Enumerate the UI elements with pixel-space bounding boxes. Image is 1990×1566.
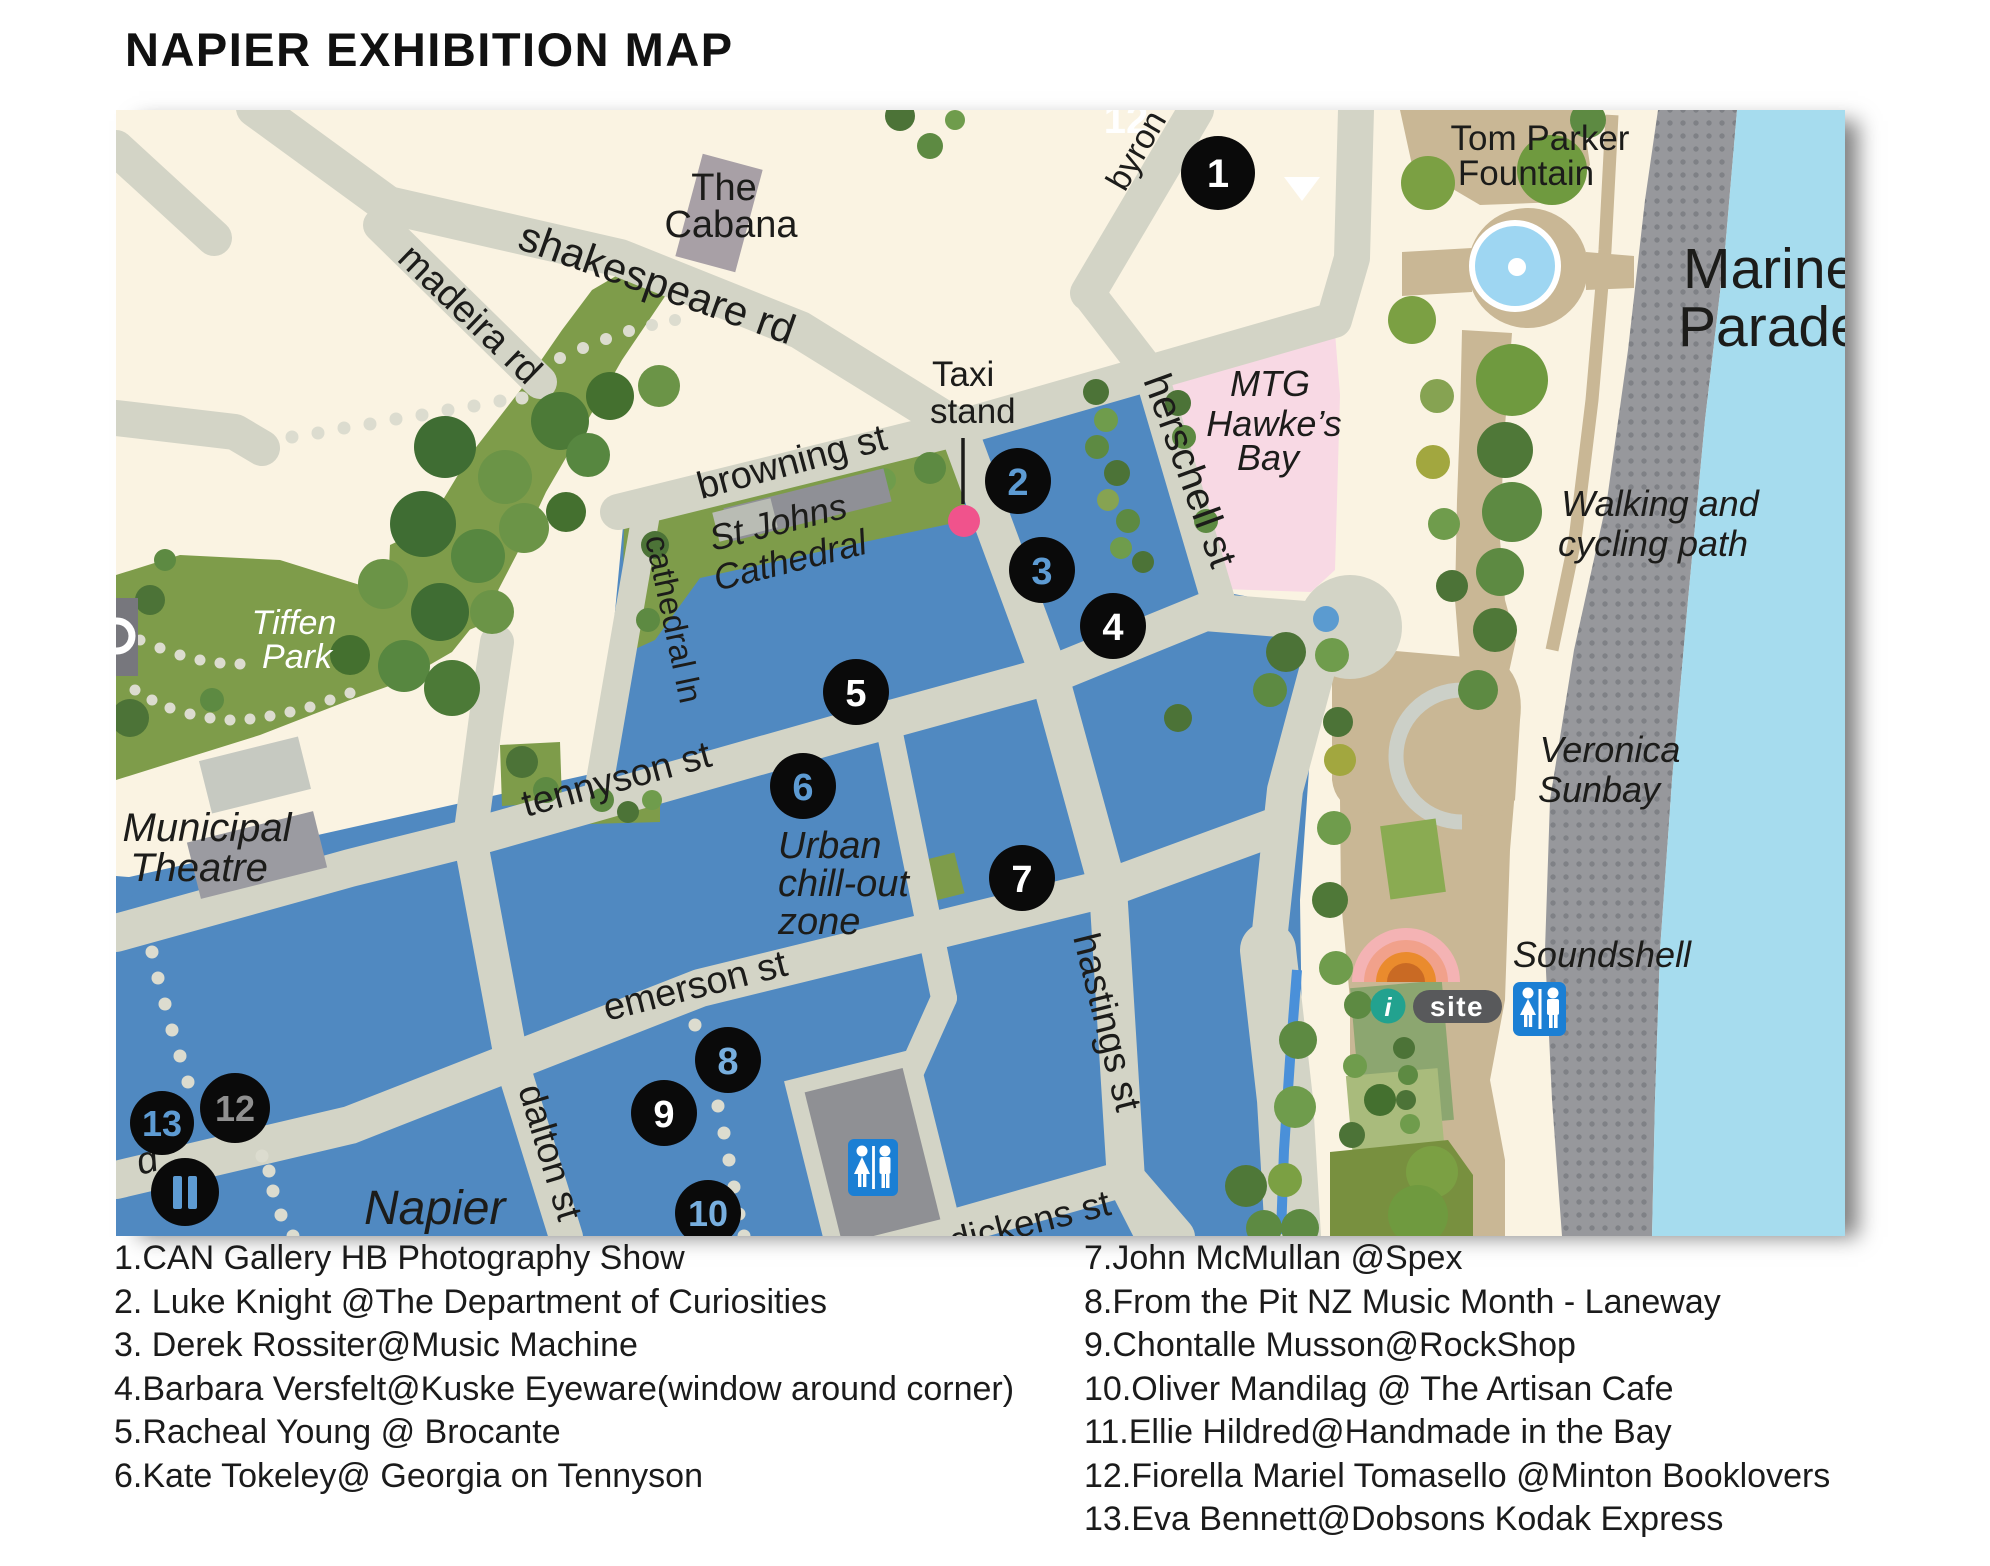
- svg-text:Bay: Bay: [1237, 437, 1301, 478]
- svg-text:Sunbay: Sunbay: [1538, 769, 1662, 810]
- svg-text:chill-out: chill-out: [778, 863, 910, 905]
- svg-text:cycling path: cycling path: [1558, 523, 1748, 564]
- svg-text:i: i: [1384, 992, 1392, 1022]
- svg-text:MTG: MTG: [1230, 363, 1310, 404]
- svg-text:13: 13: [142, 1103, 182, 1144]
- svg-text:Soundshell: Soundshell: [1513, 934, 1692, 975]
- svg-text:Urban: Urban: [778, 825, 882, 867]
- svg-text:The: The: [691, 167, 756, 209]
- svg-text:6: 6: [792, 767, 813, 809]
- svg-text:4: 4: [1102, 607, 1123, 649]
- svg-text:1: 1: [1207, 152, 1229, 196]
- svg-text:Napier: Napier: [364, 1182, 507, 1235]
- svg-text:Veronica: Veronica: [1540, 729, 1681, 770]
- svg-text:Taxi: Taxi: [932, 355, 994, 394]
- svg-text:8: 8: [717, 1041, 738, 1083]
- svg-text:9: 9: [653, 1094, 674, 1136]
- svg-text:12: 12: [215, 1088, 255, 1129]
- svg-text:site: site: [1430, 991, 1484, 1022]
- svg-text:Municipal: Municipal: [123, 806, 293, 850]
- svg-text:Tiffen: Tiffen: [252, 604, 337, 642]
- svg-text:Marine: Marine: [1683, 237, 1845, 301]
- svg-text:zone: zone: [777, 901, 860, 943]
- svg-text:Fountain: Fountain: [1458, 154, 1594, 193]
- svg-text:5: 5: [845, 673, 866, 715]
- svg-text:Theatre: Theatre: [130, 846, 268, 890]
- svg-text:10: 10: [688, 1193, 728, 1234]
- svg-text:2: 2: [1007, 462, 1028, 504]
- svg-text:7: 7: [1011, 859, 1032, 901]
- svg-text:Park: Park: [262, 638, 334, 676]
- svg-text:3: 3: [1031, 551, 1052, 593]
- svg-text:Walking and: Walking and: [1561, 483, 1759, 524]
- svg-text:stand: stand: [930, 392, 1016, 431]
- svg-text:Tom Parker: Tom Parker: [1451, 119, 1630, 158]
- svg-text:Cabana: Cabana: [664, 204, 798, 246]
- svg-text:Parade: Parade: [1678, 295, 1845, 359]
